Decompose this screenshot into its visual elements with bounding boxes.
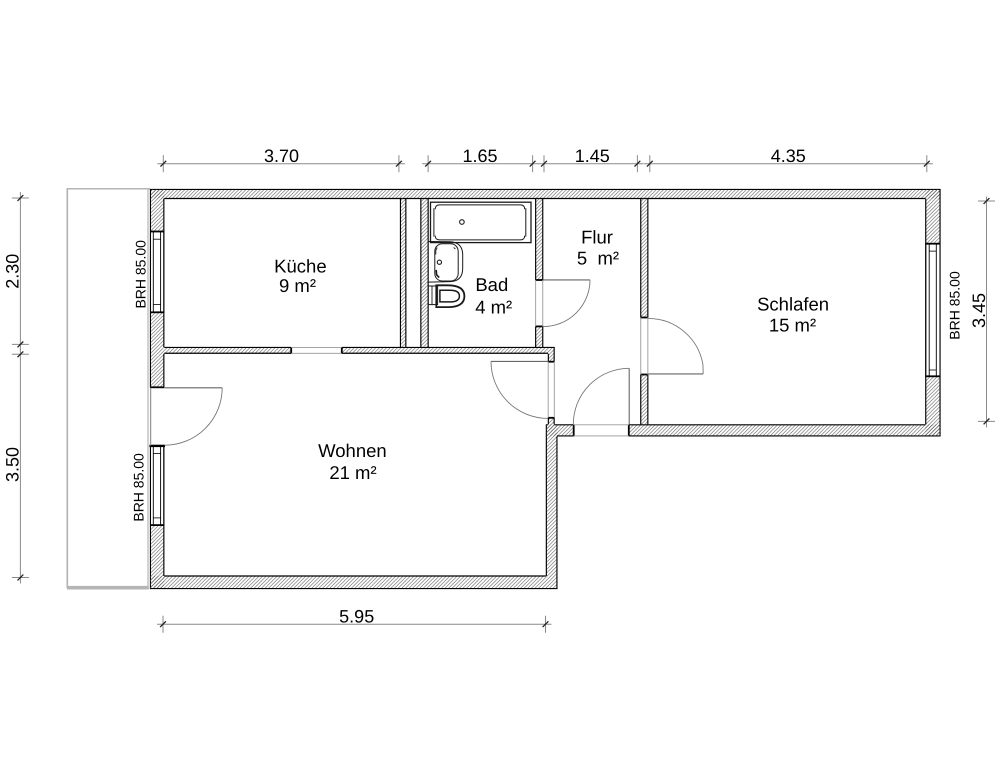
svg-text:4.35: 4.35	[771, 146, 806, 166]
svg-text:Bad: Bad	[475, 274, 508, 295]
svg-text:1.65: 1.65	[462, 146, 497, 166]
svg-text:3.45: 3.45	[969, 293, 989, 328]
svg-text:BRH 85.00: BRH 85.00	[131, 453, 147, 522]
svg-text:1.45: 1.45	[575, 146, 610, 166]
svg-text:3.50: 3.50	[3, 447, 23, 482]
svg-text:21 m²: 21 m²	[329, 462, 376, 483]
svg-text:Wohnen: Wohnen	[318, 440, 387, 461]
svg-text:Schlafen: Schlafen	[757, 294, 829, 315]
svg-text:3.70: 3.70	[264, 146, 299, 166]
svg-text:2.30: 2.30	[3, 254, 23, 289]
svg-text:5.95: 5.95	[339, 607, 374, 627]
svg-text:5 m²: 5 m²	[577, 248, 619, 269]
svg-text:BRH 85.00: BRH 85.00	[947, 271, 963, 340]
svg-text:BRH 85.00: BRH 85.00	[132, 240, 148, 309]
svg-text:Flur: Flur	[581, 227, 613, 248]
svg-text:15 m²: 15 m²	[769, 315, 816, 336]
svg-text:Küche: Küche	[274, 255, 326, 276]
svg-text:9 m²: 9 m²	[279, 275, 316, 296]
svg-text:4 m²: 4 m²	[475, 296, 512, 317]
